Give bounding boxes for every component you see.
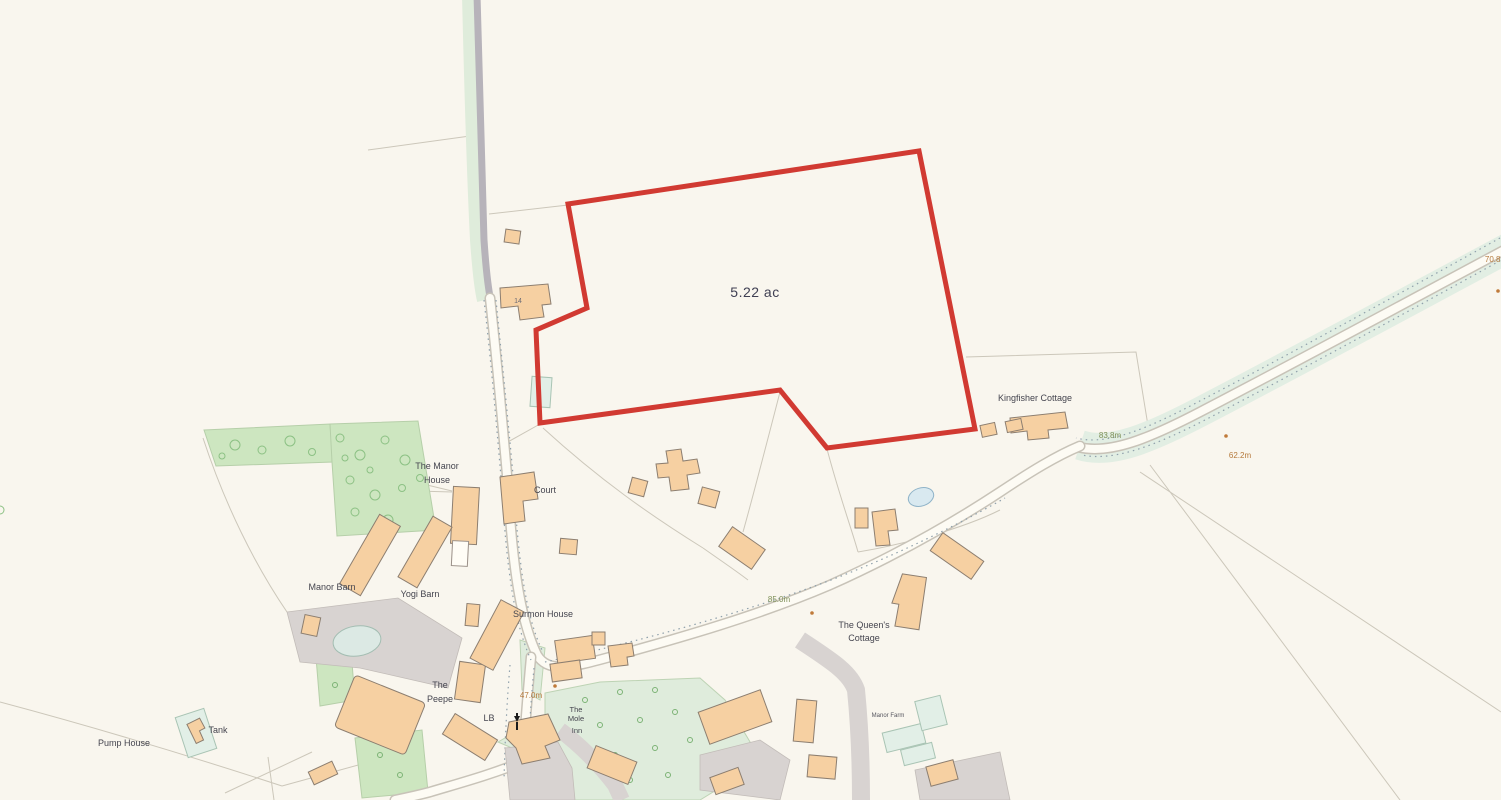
label-manor-farm: Manor Farm bbox=[872, 713, 905, 719]
label-manor-house-1: The Manor bbox=[415, 461, 459, 471]
spot-height-dot bbox=[1496, 289, 1500, 293]
building bbox=[807, 755, 837, 779]
building-annex bbox=[451, 541, 468, 567]
spot-height-70-8: 70.8m bbox=[1485, 255, 1501, 264]
building bbox=[793, 699, 817, 743]
label-queens-cottage-1: The Queen's bbox=[838, 620, 890, 630]
label-queens-cottage-2: Cottage bbox=[848, 633, 880, 643]
label-mole-inn-1: The bbox=[570, 705, 583, 714]
tree-area bbox=[204, 424, 333, 466]
building bbox=[592, 632, 605, 645]
label-peepe-2: Peepe bbox=[427, 694, 453, 704]
spot-height-62-2: 62.2m bbox=[1229, 451, 1252, 460]
spot-height-dot bbox=[553, 684, 557, 688]
label-kingfisher-cottage: Kingfisher Cottage bbox=[998, 393, 1072, 403]
label-surmon-house: Surmon House bbox=[513, 609, 573, 619]
spot-height-85-0: 85.0m bbox=[768, 595, 791, 604]
spot-height-dot bbox=[810, 611, 814, 615]
label-pump-house: Pump House bbox=[98, 738, 150, 748]
building bbox=[465, 604, 480, 627]
spot-height-47-0: 47.0m bbox=[520, 691, 543, 700]
building bbox=[451, 486, 480, 544]
map-viewport[interactable]: 5.22 ac 14 Kingfisher Cottage The Manor … bbox=[0, 0, 1501, 800]
label-manor-house-2: House bbox=[424, 475, 450, 485]
building bbox=[454, 661, 485, 702]
building bbox=[550, 660, 582, 682]
spot-height-83-8: 83.8m bbox=[1099, 431, 1122, 440]
label-manor-barn: Manor Barn bbox=[308, 582, 355, 592]
label-house-14: 14 bbox=[514, 298, 522, 305]
spot-height-dot bbox=[1224, 434, 1228, 438]
label-yogi-barn: Yogi Barn bbox=[401, 589, 440, 599]
building bbox=[559, 538, 577, 554]
building bbox=[555, 635, 596, 663]
map-background bbox=[0, 0, 1501, 800]
map-canvas[interactable]: 5.22 ac 14 Kingfisher Cottage The Manor … bbox=[0, 0, 1501, 800]
building bbox=[301, 615, 321, 637]
label-court: Court bbox=[534, 485, 557, 495]
label-mole-inn-3: Inn bbox=[572, 726, 582, 735]
building bbox=[504, 229, 521, 244]
building bbox=[628, 477, 648, 497]
plot-area-label: 5.22 ac bbox=[730, 284, 779, 300]
label-mole-inn-2: Mole bbox=[568, 714, 584, 723]
label-lb: LB bbox=[483, 713, 494, 723]
building bbox=[855, 508, 868, 528]
building bbox=[980, 422, 997, 437]
label-peepe-1: The bbox=[432, 680, 448, 690]
label-tank: Tank bbox=[208, 725, 228, 735]
